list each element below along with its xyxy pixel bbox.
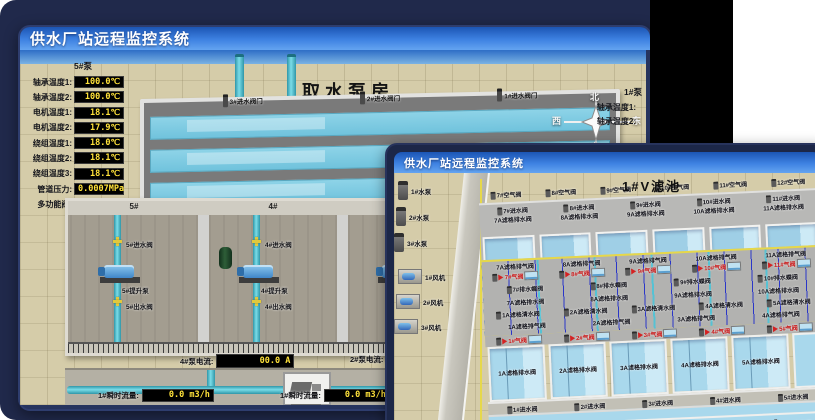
blower[interactable]: 3#风机	[394, 319, 445, 334]
valve-icon	[590, 282, 595, 290]
flow-readout-right: 1#瞬时流量: 0.0 m3/h	[280, 389, 390, 402]
inlet-valve-icon[interactable]	[252, 237, 261, 246]
pump-icon[interactable]	[104, 265, 134, 278]
water-seal-box	[591, 268, 605, 278]
filter-cell[interactable]: 5A滤格排水阀	[731, 333, 790, 391]
valve-icon	[642, 399, 647, 407]
alarm-flag-icon	[768, 262, 773, 268]
led-readout: 0.0 m3/h	[324, 389, 390, 402]
vent-valve[interactable]: 1A滤格排气阀	[508, 320, 546, 331]
air-valve-label: 5#气阀	[779, 323, 798, 333]
outlet-valve-icon[interactable]	[113, 297, 122, 306]
valve-icon	[767, 325, 772, 333]
clean-water-valve-label: 5A滤格清水阀	[773, 296, 811, 307]
pump2-current-readout: 2#泵电流:	[350, 354, 383, 365]
air-valve-label: 8#气阀	[571, 268, 590, 278]
led-readout: 00.0 A	[216, 354, 294, 368]
air-valve[interactable]: 8#气阀	[559, 268, 605, 279]
panel-row: 电机温度2: 17.9℃	[26, 122, 124, 134]
valve-icon	[600, 186, 605, 194]
valve-icon	[490, 191, 495, 199]
blower-icon	[396, 294, 420, 309]
valve-icon	[713, 181, 718, 189]
panel-row-label: 轴承温度2:	[26, 92, 72, 103]
drain-valve-label: 7A滤格排水阀	[506, 297, 544, 308]
vent-valve[interactable]: 10A滤格排气阀	[695, 252, 736, 263]
valve-icon	[762, 261, 767, 269]
pump-icon	[398, 181, 408, 200]
alarm-flag-icon	[502, 338, 507, 344]
pump4-current-readout: 4#泵电流: 00.0 A	[180, 354, 294, 368]
drain-valve[interactable]: 9A滤格排水阀	[674, 289, 712, 300]
pump-icon[interactable]	[243, 265, 273, 278]
valve-icon	[692, 264, 697, 272]
pump-icon	[394, 233, 404, 252]
valve-icon	[564, 308, 569, 316]
led-readout: 18.1℃	[74, 152, 124, 164]
valve-icon	[493, 273, 498, 281]
inlet-valve[interactable]: 3#进水阀门	[223, 93, 263, 107]
panel-row: 轴承温度1:	[576, 102, 642, 113]
alarm-flag-icon	[565, 271, 570, 277]
valve-icon	[767, 299, 772, 307]
air-valve-label: 10#气阀	[704, 262, 726, 272]
air-valve-label: 11#空气阀	[719, 179, 747, 189]
water-pump[interactable]: 1#水泵	[398, 181, 431, 200]
flow-label: 1#瞬时流量:	[280, 390, 321, 401]
panel-row: 绕组温度2: 18.1℃	[26, 152, 124, 164]
panel-row: 绕组温度1: 18.0℃	[26, 137, 124, 149]
air-valve-label: 7#空气阀	[496, 189, 521, 199]
water-pump[interactable]: 3#水泵	[394, 233, 431, 252]
filter-cell[interactable]: 4A滤格排水阀	[670, 336, 729, 394]
water-seal-box	[799, 322, 813, 332]
inlet-valve[interactable]: 4#进水阀	[710, 395, 741, 405]
drain-valve[interactable]: 8A滤格排水阀	[560, 211, 598, 222]
inlet-valve[interactable]: 2#进水阀门	[360, 91, 400, 105]
panel-row-label: 绕组温度3:	[26, 168, 72, 179]
back-window-title: 供水厂站远程监控系统	[30, 28, 190, 49]
valve-icon	[564, 204, 569, 212]
pump1-panel-header: 1#泵	[624, 86, 642, 98]
inlet-valve-label: 3#进水阀门	[230, 95, 263, 106]
led-readout: 18.1℃	[74, 107, 124, 119]
blower-label: 2#风机	[423, 297, 443, 307]
inlet-valve-label: 4#进水阀	[716, 395, 741, 405]
air-valve[interactable]: 11#空气阀	[713, 179, 747, 190]
led-readout: 100.0℃	[74, 76, 124, 88]
water-seal-box	[595, 332, 609, 342]
drain-valve[interactable]: 7A滤格排水阀	[506, 297, 544, 308]
inlet-valve[interactable]: 5#进水阀	[778, 392, 809, 402]
air-valve[interactable]: 7#空气阀	[490, 189, 521, 199]
butterfly-valve-label: 8#排水蝶阀	[596, 280, 627, 290]
drain-valve-label: 7A滤格排水阀	[494, 214, 532, 225]
blower[interactable]: 2#风机	[396, 294, 445, 309]
alarm-flag-icon	[705, 328, 710, 334]
valve-icon	[545, 189, 550, 197]
valve-icon	[497, 207, 502, 215]
vent-valve[interactable]: 8A滤格排气阀	[563, 258, 601, 269]
desktop-black-region	[650, 0, 733, 146]
filter-cell[interactable]: 2A滤格排水阀	[548, 342, 607, 400]
inlet-valve[interactable]: 2#进水阀	[574, 401, 605, 411]
water-seal-box	[528, 335, 542, 345]
valve-icon	[696, 198, 701, 206]
blower-list: 1#风机 2#风机 3#风机	[398, 269, 445, 334]
compass-west: 西	[552, 114, 561, 127]
pump-bay[interactable]: 4# 4#进水阀 4#提升泵 4#出水阀	[198, 215, 337, 343]
inlet-valve[interactable]: 1#进水阀	[507, 404, 538, 414]
air-valve-label: 11#气阀	[774, 259, 796, 269]
scene-title-filter: 1#V滤池	[622, 176, 681, 195]
led-readout: 0.0 m3/h	[142, 389, 214, 402]
drain-valve[interactable]: 7A滤格排水阀	[494, 214, 532, 225]
panel-row: 管道压力: 0.0007MPa	[26, 183, 124, 195]
water-pump-list: 1#水泵 2#水泵 3#水泵	[398, 181, 431, 252]
vent-valve-label: 9A滤格排气阀	[629, 255, 667, 266]
valve-icon	[360, 91, 365, 104]
water-seal-box	[524, 271, 538, 281]
inlet-valve-label: 1#进水阀门	[504, 89, 537, 100]
valve-icon	[496, 311, 501, 319]
valve-icon	[564, 334, 569, 342]
flow-label: 1#瞬时流量:	[98, 390, 139, 401]
valve-icon	[699, 328, 704, 336]
valve-icon	[632, 331, 637, 339]
bay-inlet-valve-label: 5#进水阀	[126, 239, 153, 249]
front-window-title: 供水厂站远程监控系统	[404, 155, 524, 171]
drain-valve-label: 4A滤格排水阀	[681, 359, 720, 392]
butterfly-valve[interactable]: 8#排水蝶阀	[590, 280, 627, 291]
air-valve-label: 8#空气阀	[551, 187, 576, 197]
water-pump-label: 3#水泵	[407, 238, 427, 248]
valve-icon	[497, 88, 502, 101]
butterfly-valve[interactable]: 10#排水蝶阀	[758, 272, 798, 283]
butterfly-valve-label: 9#排水蝶阀	[680, 276, 711, 286]
clean-water-valve-label: 1A滤格清水阀	[502, 309, 540, 320]
clean-water-valve[interactable]: 5A滤格清水阀	[767, 296, 811, 307]
air-valve-label: 9#气阀	[637, 265, 656, 275]
drain-valve-label: 11A滤格排水阀	[763, 202, 804, 213]
water-pump[interactable]: 2#水泵	[396, 207, 431, 226]
current-label: 4#泵电流:	[180, 356, 213, 367]
water-lane	[150, 107, 610, 140]
valve-icon	[771, 178, 776, 186]
valve-icon	[496, 337, 501, 345]
pump1-panel-rows: 轴承温度1: 轴承温度2:	[576, 102, 642, 127]
panel-row: 电机温度1: 18.1℃	[26, 107, 124, 119]
bay-pump-label: 5#提升泵	[122, 285, 149, 295]
bay-inlet-valve-label: 4#进水阀	[265, 239, 292, 249]
alarm-flag-icon	[773, 325, 778, 331]
air-valve-label: 12#空气阀	[777, 177, 805, 187]
window-v-filter[interactable]: 供水厂站远程监控系统 1#V滤池 1#水泵 2#水泵	[385, 143, 815, 420]
vent-valve-label: 8A滤格排气阀	[563, 258, 601, 269]
butterfly-valve[interactable]: 7#排水蝶阀	[506, 284, 543, 295]
panel-row-label: 管道压力:	[26, 184, 72, 195]
valve-icon	[574, 403, 579, 411]
vent-valve-label: 3A滤格排气阀	[677, 313, 715, 324]
valve-icon	[710, 396, 715, 404]
clean-water-valve[interactable]: 3A滤格清水阀	[631, 303, 675, 314]
blower-icon	[394, 319, 418, 334]
water-seal-box	[657, 265, 671, 275]
panel-row-label: 轴承温度1:	[26, 77, 72, 88]
alarm-flag-icon	[570, 335, 575, 341]
pump5-data-panel: 5#泵 轴承温度1: 100.0℃ 轴承温度2: 100.0℃	[26, 60, 124, 214]
drain-valve-label: 10A滤格排水阀	[693, 205, 734, 216]
vent-valve-label: 4A滤格排气阀	[762, 309, 800, 320]
air-valve-label: 2#气阀	[576, 332, 595, 342]
drain-valve-label: 1A滤格排水阀	[498, 367, 537, 400]
led-readout: 18.1℃	[74, 168, 124, 180]
air-valve[interactable]: 7#气阀	[493, 271, 539, 282]
pump5-panel-header: 5#泵	[74, 60, 124, 72]
valve-icon	[506, 285, 511, 293]
inlet-valve[interactable]: 1#进水阀门	[497, 88, 537, 102]
back-window-titlebar[interactable]: 供水厂站远程监控系统	[20, 27, 650, 50]
drain-valve[interactable]: 10A滤格排水阀	[693, 205, 734, 216]
bay-number: 4#	[269, 202, 278, 211]
butterfly-valve[interactable]: 9#排水蝶阀	[674, 276, 711, 287]
pump1-data-panel: 1#泵 轴承温度1: 轴承温度2:	[576, 86, 642, 131]
flow-readout-left: 1#瞬时流量: 0.0 m3/h	[98, 389, 214, 402]
air-valve-label: 4#气阀	[711, 326, 730, 336]
valve-icon	[674, 278, 679, 286]
valve-icon	[631, 305, 636, 313]
front-scene: 1#V滤池 1#水泵 2#水泵	[394, 173, 815, 420]
bay-number: 5#	[130, 202, 139, 211]
clean-water-valve[interactable]: 2A滤格清水阀	[564, 306, 608, 317]
inlet-valve-label: 2#进水阀门	[367, 92, 400, 103]
vent-valve-label: 11A滤格排气阀	[765, 249, 806, 260]
valve-icon	[625, 267, 630, 275]
bay-outlet-valve-label: 4#出水阀	[265, 301, 292, 311]
filter-cell[interactable]: 1A滤格排水阀	[487, 345, 546, 403]
water-pump-label: 2#水泵	[409, 212, 429, 222]
water-seal-box	[796, 258, 810, 268]
panel-row-label: 绕组温度1:	[26, 138, 72, 149]
blower[interactable]: 1#风机	[398, 269, 445, 284]
drain-valve[interactable]: 10A滤格排水阀	[758, 285, 799, 296]
led-readout: 100.0℃	[74, 91, 124, 103]
vent-valve-label: 2A滤格排气阀	[593, 317, 631, 328]
bay-pump-label: 4#提升泵	[261, 285, 288, 295]
valve-icon	[758, 274, 763, 282]
drain-valve-label: 5A滤格排水阀	[742, 356, 781, 389]
drain-valve[interactable]: 8A滤格排水阀	[590, 293, 628, 304]
vent-valve[interactable]: 4A滤格排气阀	[762, 309, 800, 320]
stage: 供水厂站远程监控系统 取水泵房 5#泵 轴承温度1: 100.0℃	[0, 0, 815, 420]
panel-row: 绕组温度3: 18.1℃	[26, 168, 124, 180]
panel-row-label: 轴承温度1:	[576, 102, 636, 113]
inlet-valve-icon[interactable]	[113, 237, 122, 246]
drain-valve[interactable]: 9A滤格排水阀	[627, 208, 665, 219]
pump-icon	[396, 207, 406, 226]
alarm-flag-icon	[632, 268, 637, 274]
drain-valve-label: 9A滤格排水阀	[627, 208, 665, 219]
panel-row-label: 电机温度2:	[26, 122, 72, 133]
valve-icon	[507, 406, 512, 414]
inlet-valve-label: 5#进水阀	[784, 392, 809, 402]
blower-label: 1#风机	[425, 272, 445, 282]
outlet-valve-icon[interactable]	[252, 297, 261, 306]
air-valve[interactable]: 8#空气阀	[545, 187, 576, 197]
drain-valve-label: 8A滤格排水阀	[590, 293, 628, 304]
air-valve[interactable]: 11#气阀	[762, 258, 811, 269]
butterfly-valve-label: 7#排水蝶阀	[512, 284, 543, 294]
alarm-flag-icon	[698, 265, 703, 271]
panel-row: 轴承温度2: 100.0℃	[26, 91, 124, 103]
valve-icon	[766, 195, 771, 203]
vent-valve[interactable]: 2A滤格排气阀	[593, 317, 631, 328]
valve-icon	[699, 302, 704, 310]
air-valve-label: 3#气阀	[643, 329, 662, 339]
valve-icon	[630, 201, 635, 209]
vent-valve-label: 1A滤格排气阀	[508, 320, 546, 331]
vent-valve[interactable]: 11A滤格排气阀	[765, 249, 806, 260]
bay-outlet-valve-label: 5#出水阀	[126, 301, 153, 311]
drain-valve-label: 10A滤格排水阀	[758, 285, 799, 296]
water-seal-box	[663, 329, 677, 339]
vent-valve[interactable]: 3A滤格排气阀	[677, 313, 715, 324]
inlet-valve-label: 1#进水阀	[513, 404, 538, 414]
current-label: 2#泵电流:	[350, 354, 383, 365]
water-seal-box	[727, 262, 741, 272]
pump-bay[interactable]: 5# 5#进水阀 5#提升泵 5#出水阀	[70, 215, 198, 343]
water-pump-label: 1#水泵	[411, 186, 431, 196]
front-window-titlebar[interactable]: 供水厂站远程监控系统	[394, 152, 815, 173]
flow-meter-base	[291, 404, 321, 405]
drain-valve-label: 8A滤格排水阀	[560, 211, 598, 222]
clean-water-valve[interactable]: 1A滤格清水阀	[496, 309, 540, 320]
panel-row: 轴承温度2:	[576, 116, 642, 127]
vent-valve[interactable]: 9A滤格排气阀	[629, 255, 667, 266]
inlet-valve-label: 2#进水阀	[580, 401, 605, 411]
led-readout: 18.0℃	[74, 137, 124, 149]
drain-valve-label: 3A滤格排水阀	[620, 361, 659, 394]
air-valve[interactable]: 9#气阀	[625, 265, 671, 276]
air-valve[interactable]: 12#空气阀	[771, 177, 805, 188]
led-readout: 0.0007MPa	[74, 183, 124, 195]
water-seal-box	[731, 325, 745, 335]
panel-row-label: 轴承温度2:	[576, 116, 636, 127]
filter-cell[interactable]: 3A滤格排水阀	[609, 339, 668, 397]
air-valve-label: 1#气阀	[508, 335, 527, 345]
drain-valve[interactable]: 11A滤格排水阀	[763, 202, 804, 213]
vent-valve[interactable]: 7A滤格排气阀	[496, 261, 534, 272]
valve-icon	[559, 270, 564, 278]
inlet-valve[interactable]: 3#进水阀	[642, 398, 673, 408]
vent-valve-label: 7A滤格排气阀	[496, 261, 534, 272]
led-readout: 17.9℃	[74, 122, 124, 134]
drain-valve-label: 2A滤格排水阀	[559, 364, 598, 397]
valve-icon	[778, 393, 783, 401]
alarm-flag-icon	[638, 332, 643, 338]
clean-water-valve-label: 3A滤格清水阀	[637, 303, 675, 314]
clean-water-valve[interactable]: 4A滤格清水阀	[699, 299, 743, 310]
panel-row-label: 电机温度1:	[26, 107, 72, 118]
inlet-valve-label: 3#进水阀	[648, 398, 673, 408]
filter-block: 7#空气阀 8#空气阀 9#空气阀	[478, 175, 815, 420]
butterfly-valve-label: 10#排水蝶阀	[764, 272, 798, 283]
blower-label: 3#风机	[421, 322, 441, 332]
blower-icon	[398, 269, 422, 284]
drain-valve-label: 9A滤格排水阀	[674, 289, 712, 300]
vent-valve-label: 10A滤格排气阀	[695, 252, 736, 263]
panel-row-label: 绕组温度2:	[26, 153, 72, 164]
pump5-panel-rows: 轴承温度1: 100.0℃ 轴承温度2: 100.0℃ 电机温度1: 18.1℃	[26, 76, 124, 210]
air-valve-label: 7#气阀	[505, 271, 524, 281]
clean-water-valve-label: 4A滤格清水阀	[705, 299, 743, 310]
valve-icon	[223, 94, 228, 107]
panel-row: 轴承温度1: 100.0℃	[26, 76, 124, 88]
air-valve[interactable]: 10#气阀	[692, 262, 741, 273]
clean-water-valve-label: 2A滤格清水阀	[570, 306, 608, 317]
alarm-flag-icon	[499, 274, 504, 280]
